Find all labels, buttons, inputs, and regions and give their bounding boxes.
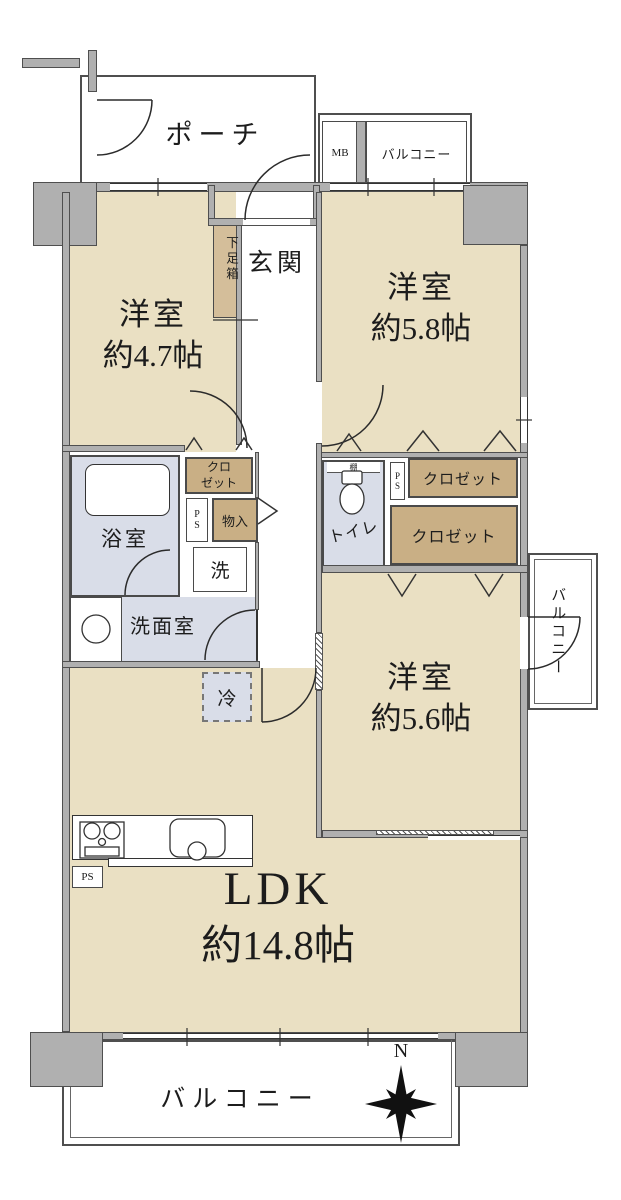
storage-label: 物入 (222, 511, 248, 530)
east-balcony-door-gap (520, 617, 528, 669)
window-south-ldk (123, 1033, 438, 1039)
window-east-ne-room (520, 397, 528, 443)
bedroom-ne-size: 約5.8帖 (322, 311, 520, 347)
kitchen-counter (72, 815, 253, 860)
bedroom-nw-size: 約4.7帖 (70, 338, 236, 374)
compass-north-label: N (381, 1040, 421, 1063)
bathtub (85, 464, 170, 516)
floor-plan: MB バルコニー PS 物入 洗 棚 PS クロゼット クロゼット 冷 PS (0, 0, 621, 1200)
storage-monoire: 物入 (212, 498, 258, 542)
pillar-northeast (463, 185, 528, 245)
hall-west-wall-lower-2 (255, 542, 259, 610)
window-north-ne (330, 183, 470, 191)
closet-east-1-label: クロゼット (423, 468, 503, 489)
window-north-nw (110, 183, 207, 191)
pipe-space-left: PS (186, 498, 208, 542)
closet-east-1: クロゼット (408, 458, 518, 498)
bedroom-se-size: 約5.6帖 (322, 701, 520, 737)
pipe-space-right-label: PS (393, 471, 403, 491)
shoe-box-label: 下足箱 (214, 236, 238, 283)
ldk-label: LDK 約14.8帖 (62, 862, 494, 969)
closet-east-2-label: クロゼット (411, 523, 496, 547)
pillar-southwest (30, 1032, 103, 1087)
washroom-south-wall (62, 661, 260, 668)
closet-nw-label: クロ ゼット (185, 460, 253, 491)
washer-pan: 洗 (193, 547, 247, 592)
bedroom-se-label: 洋室 約5.6帖 (322, 660, 520, 736)
east-balcony-label: バルコニー (548, 572, 565, 692)
exterior-stub-vertical (88, 50, 97, 92)
bathroom-label: 浴室 (70, 527, 180, 551)
ldk-name: LDK (62, 862, 494, 916)
pipe-space-left-label: PS (192, 509, 203, 531)
meter-box: MB (322, 121, 358, 185)
refrigerator-label: 冷 (217, 684, 236, 711)
exterior-stub-horizontal (22, 58, 80, 68)
bedroom-ne-name: 洋室 (322, 270, 520, 306)
south-balcony-label: バルコニー (118, 1086, 362, 1115)
sliding-door-se-ldk-leaf (428, 835, 520, 840)
porch-label: ポーチ (130, 120, 300, 151)
bedroom-nw-label: 洋室 約4.7帖 (70, 297, 236, 373)
entrance-door-gap (243, 219, 310, 225)
closet-nw-line1: クロ (185, 460, 253, 476)
pipe-space-right: PS (390, 462, 405, 500)
closet-east-2: クロゼット (390, 505, 518, 565)
bedroom-ne-south-wall (316, 452, 528, 458)
bedroom-nw-south-wall (62, 445, 185, 452)
bedroom-nw-name: 洋室 (70, 297, 236, 333)
washer-label: 洗 (210, 556, 229, 583)
washroom-label: 洗面室 (108, 616, 218, 639)
toilet-room (322, 460, 385, 568)
toilet-shelf: 棚 (327, 462, 380, 473)
closet-nw-line2: ゼット (185, 476, 253, 492)
ldk-size: 約14.8帖 (62, 922, 494, 969)
mb-divider-wall (356, 121, 366, 185)
bedroom-se-name: 洋室 (322, 660, 520, 696)
hall-west-wall-lower-1 (255, 452, 259, 498)
storage-door-swing-mark (258, 498, 277, 524)
bedroom-ne-label: 洋室 約5.8帖 (322, 270, 520, 346)
north-balcony: バルコニー (366, 121, 467, 185)
entrance-label: 玄関 (232, 250, 322, 279)
toilet-shelf-label: 棚 (350, 462, 358, 473)
refrigerator-space: 冷 (202, 672, 252, 722)
north-balcony-label: バルコニー (382, 144, 452, 163)
pillar-southeast (455, 1032, 528, 1087)
closet-east-south-wall (322, 565, 528, 573)
meter-box-label: MB (331, 147, 348, 159)
